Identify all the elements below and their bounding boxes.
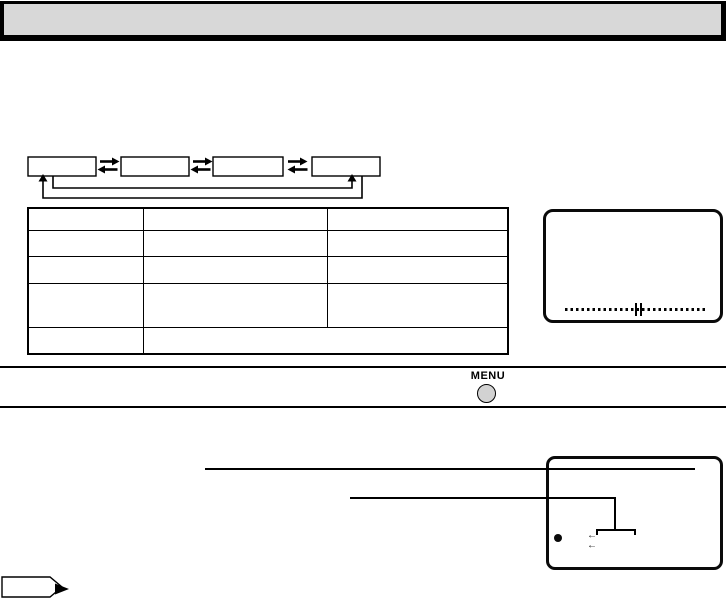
wrap-return-line-forward: [53, 174, 357, 188]
table-cell: [28, 256, 143, 283]
table-row: [28, 283, 508, 327]
manual-page: MENU ← ←: [0, 0, 726, 602]
header-bar: [0, 1, 726, 41]
table-cell-merged: [143, 327, 508, 354]
lcd-screen: [543, 209, 723, 323]
menu-table: [27, 207, 509, 355]
table-cell: [28, 208, 143, 230]
table-cell: [28, 327, 143, 354]
arrow-right-icon: [193, 158, 213, 166]
table-cell: [28, 283, 143, 327]
table-cell: [28, 230, 143, 256]
wrap-return-line-back: [39, 174, 363, 198]
callout-line-2: [350, 497, 616, 499]
table-cell: [143, 230, 327, 256]
table-row: [28, 327, 508, 354]
flow-diagram: [0, 145, 420, 205]
arrow-right-icon: [100, 158, 120, 166]
arrow-right-icon: [288, 158, 308, 166]
osd-screen: [546, 456, 723, 570]
scale-center-marker-icon: [634, 303, 643, 316]
note-pencil-icon: [0, 575, 76, 601]
table-cell: [143, 256, 327, 283]
table-row: [28, 208, 508, 230]
table-row: [28, 256, 508, 283]
flow-box-3: [213, 157, 283, 176]
arrow-left-icon: [98, 166, 118, 174]
flow-box-4: [312, 157, 380, 176]
callout-line-1: [205, 468, 695, 470]
arrow-left-icon: [288, 166, 308, 174]
menu-button-icon: [477, 384, 496, 403]
flow-box-2: [121, 157, 189, 176]
table-cell: [327, 208, 508, 230]
table-cell: [327, 256, 508, 283]
bullet-icon: [554, 534, 562, 542]
range-bracket-tick-right: [634, 529, 636, 535]
menu-button-label: MENU: [463, 370, 513, 382]
band-bottom-rule: [0, 406, 726, 408]
marker-bar: [635, 303, 637, 316]
marker-bar: [640, 303, 642, 316]
table-cell: [143, 208, 327, 230]
table-cell: [327, 283, 508, 327]
arrow-left-icon: [191, 166, 211, 174]
flow-box-1: [28, 157, 96, 176]
table-cell: [143, 283, 327, 327]
callout-line-2-drop: [614, 497, 616, 531]
band-top-rule: [0, 366, 726, 368]
left-arrow-icon: ←: [587, 541, 597, 551]
range-bracket: [596, 529, 636, 531]
table-row: [28, 230, 508, 256]
table-cell: [327, 230, 508, 256]
